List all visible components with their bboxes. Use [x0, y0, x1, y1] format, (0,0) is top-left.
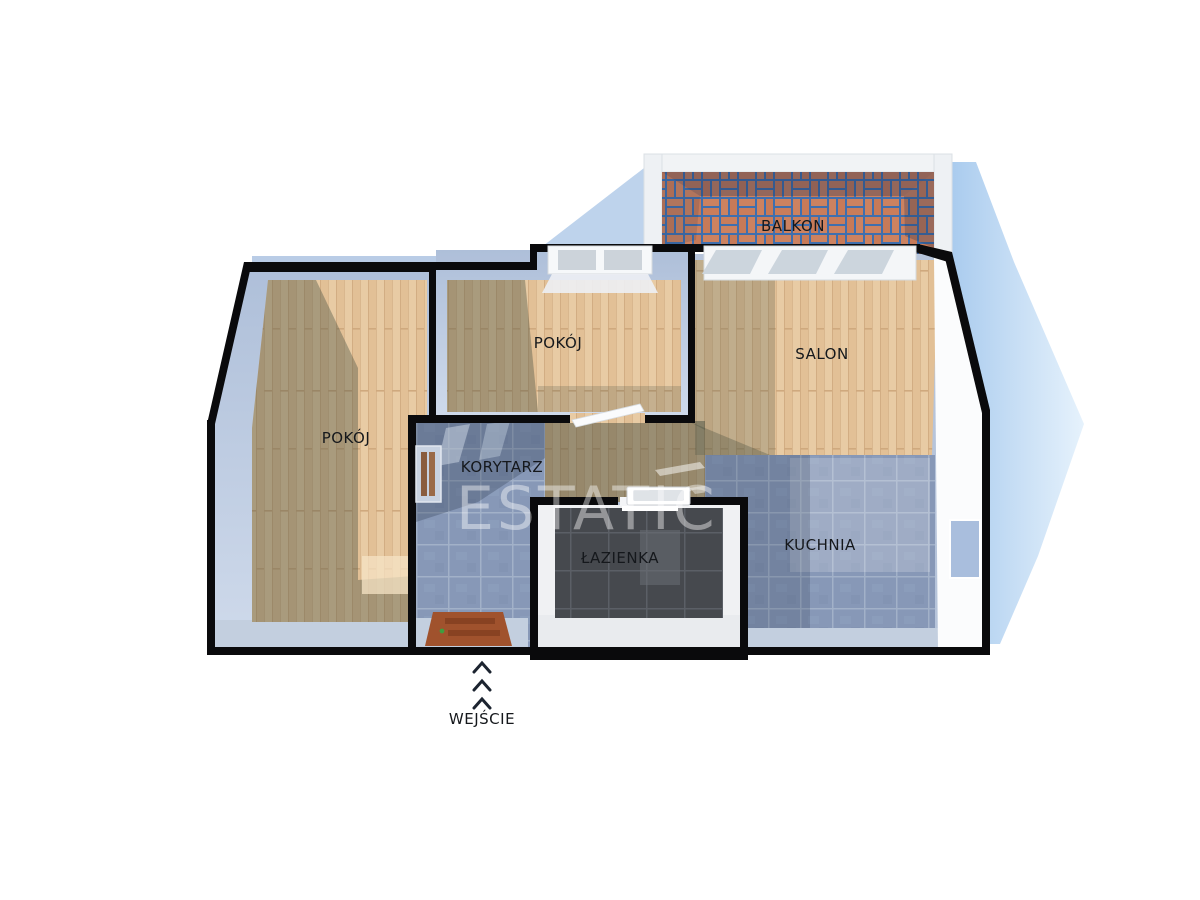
room-pokoj-left — [214, 264, 429, 650]
entrance-chevron-icon — [474, 699, 490, 708]
pokoj-top-floor-shadow2 — [538, 386, 681, 412]
label-lazienka: ŁAZIENKA — [580, 549, 659, 567]
wall-top-mid-a — [429, 262, 536, 270]
niche-radiator-bar — [421, 452, 427, 496]
doormat-stripe — [448, 630, 500, 636]
wall-korytarz-left — [408, 415, 416, 651]
wall-bottom — [207, 647, 990, 655]
balcony-wall-top — [644, 154, 952, 172]
wall-left — [207, 420, 215, 655]
label-kuchnia: KUCHNIA — [784, 536, 856, 554]
wall-pokoj-divider — [429, 262, 436, 421]
pokoj-top-floor-shadow — [447, 280, 538, 412]
kuchnia-window — [950, 520, 980, 578]
pokoj-left-light-patch — [362, 556, 414, 594]
lazienka-floor-edge — [538, 615, 740, 652]
niche-frame — [416, 446, 441, 502]
kuchnia-light-patch — [790, 458, 930, 572]
wall-salon-divider — [688, 244, 695, 423]
wall-right — [982, 410, 990, 655]
doormat — [425, 612, 512, 646]
doormat-stripe — [445, 618, 495, 624]
floor-plan: ESTATIC BALKON POKÓJ SALON POKÓJ KORYTAR… — [0, 0, 1200, 900]
wall-korytarz-top-right — [645, 415, 695, 423]
label-balkon: BALKON — [761, 217, 825, 235]
label-korytarz: KORYTARZ — [461, 458, 543, 476]
window-pane — [558, 250, 596, 270]
window-sill — [542, 274, 658, 293]
salon-floor-shadow-left — [695, 260, 775, 455]
niche-radiator-bar — [429, 452, 435, 496]
entrance-chevron-icon — [474, 663, 490, 672]
balcony-shade-top — [662, 172, 934, 196]
label-pokoj-top: POKÓJ — [534, 333, 583, 352]
window-pane — [604, 250, 642, 270]
label-pokoj-left: POKÓJ — [322, 428, 371, 447]
pokoj-top-window — [542, 246, 658, 293]
floor-plan-canvas: ESTATIC BALKON POKÓJ SALON POKÓJ KORYTAR… — [0, 0, 1200, 900]
entrance-chevron-icon — [474, 681, 490, 690]
lazienka-wall-right — [740, 497, 748, 660]
pokoj-left-floor-edge — [214, 620, 429, 650]
balcony-door — [702, 246, 916, 280]
doormat-base — [425, 612, 512, 646]
entrance-marker: WEJŚCIE — [449, 663, 515, 728]
doormat-accent — [440, 629, 445, 634]
wall-korytarz-top-left — [408, 415, 570, 423]
wall-top-pokoj-left — [244, 262, 436, 272]
label-wejscie: WEJŚCIE — [449, 709, 515, 728]
korytarz-niche — [416, 446, 441, 502]
watermark: ESTATIC — [456, 474, 718, 544]
label-salon: SALON — [795, 345, 848, 363]
